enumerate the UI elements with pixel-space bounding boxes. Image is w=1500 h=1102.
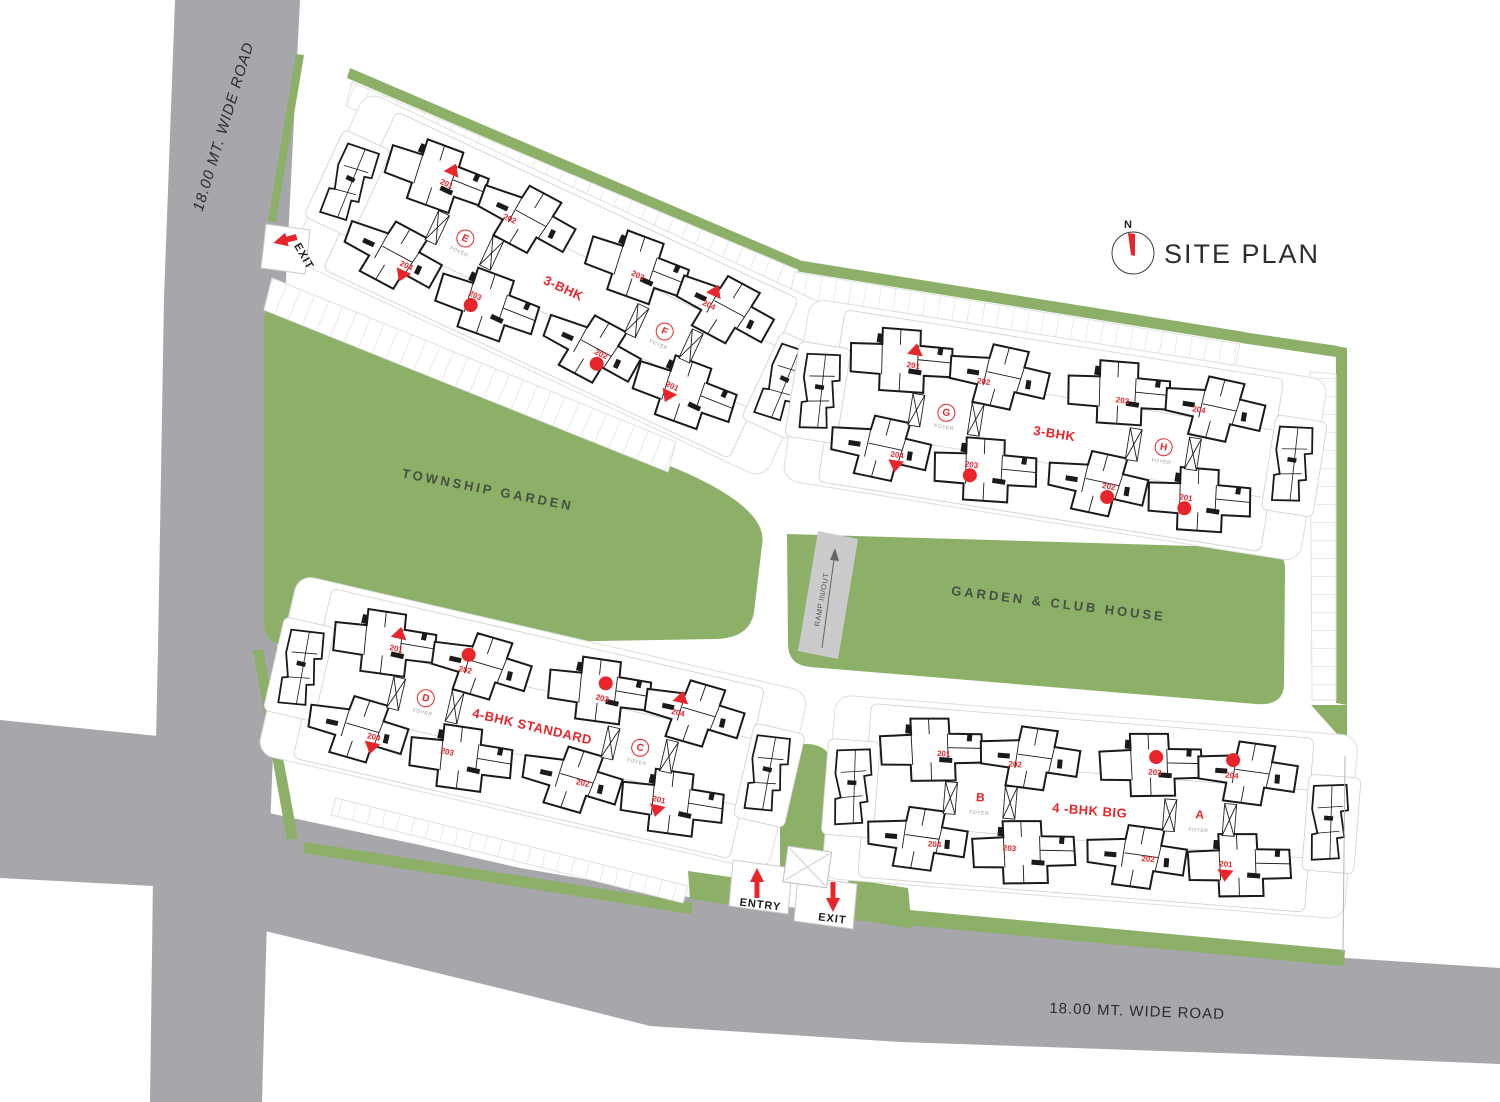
unit-label-BA-BL1: 204: [928, 839, 943, 849]
left-branch-road: [0, 720, 158, 886]
site-plan-page: RAMP IN/OUT TOWNSHIP GARDEN GARDEN & CLU…: [0, 0, 1500, 1102]
unit-label-BA-TR2: 204: [1225, 771, 1240, 781]
site-plan-drawing: RAMP IN/OUT TOWNSHIP GARDEN GARDEN & CLU…: [0, 0, 1500, 1102]
unit-label-BA-BR1: 202: [1141, 854, 1156, 864]
unit-label-BA-BR2: 201: [1219, 859, 1234, 869]
page-title: SITE PLAN: [1164, 239, 1320, 269]
tower-letter: B: [976, 790, 986, 805]
north-label: N: [1124, 219, 1132, 231]
gate-booth: [783, 846, 832, 888]
unit-label-BA-TL1: 201: [937, 749, 952, 759]
unit-label-BA-BL2: 203: [1002, 843, 1017, 853]
unit-label-BA-TL2: 202: [1008, 759, 1023, 769]
unit-label-BA-TR1: 203: [1148, 767, 1163, 777]
tower-letter: A: [1195, 807, 1205, 822]
boundary-strip-right: [1336, 346, 1347, 705]
top-exit-gate: EXIT: [261, 224, 316, 274]
